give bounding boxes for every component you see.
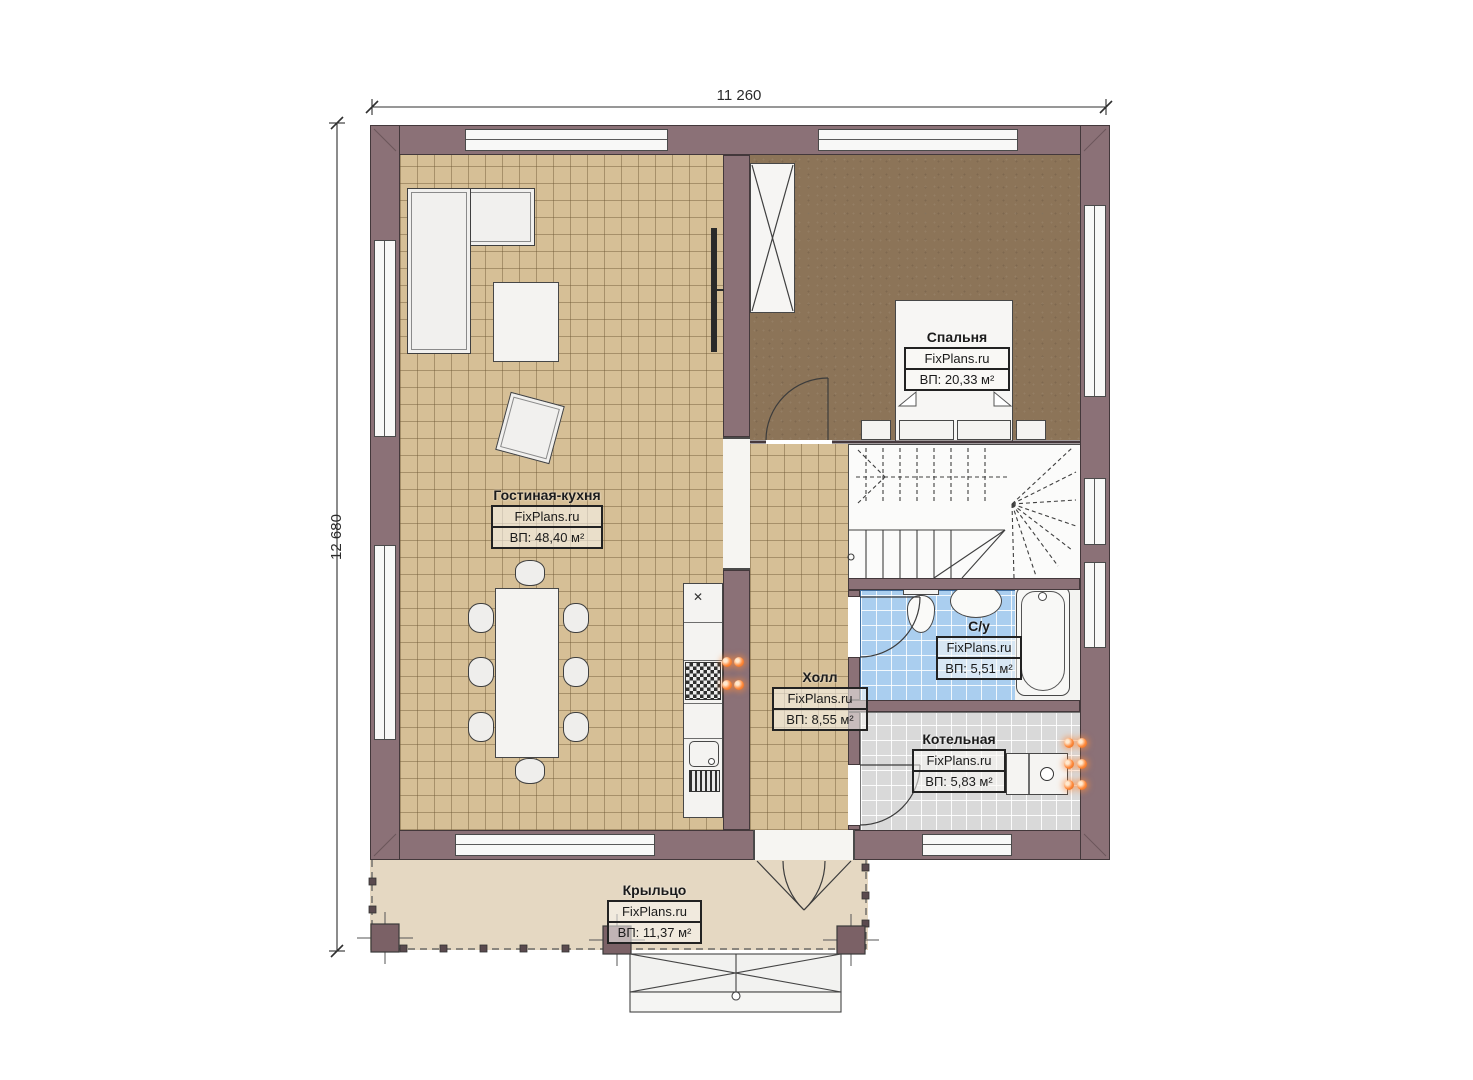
dish-drainer-grate (689, 770, 720, 792)
room-name: Спальня (904, 329, 1010, 345)
pipe-dot (1064, 759, 1074, 769)
room-label-box: FixPlans.ru ВП: 8,55 м² (772, 687, 868, 731)
stove-burners (685, 662, 721, 700)
room-label-living: Гостиная-кухня FixPlans.ru ВП: 48,40 м² (491, 487, 603, 549)
wardrobe (750, 163, 795, 313)
bed-mattress-left (899, 420, 954, 440)
room-name: Гостиная-кухня (491, 487, 603, 503)
window-bottom-living (455, 834, 655, 856)
window-top-living (465, 129, 668, 151)
radiator-dot (722, 657, 732, 667)
window-left-upper (374, 240, 396, 437)
wall-stairs-bathroom (848, 578, 1080, 590)
porch-steps (630, 954, 841, 1012)
dining-chair-left-3 (468, 712, 494, 742)
room-name: Крыльцо (607, 882, 702, 898)
counter-divider-3 (684, 703, 722, 704)
room-area: ВП: 20,33 м² (906, 368, 1008, 389)
floor-plan-canvas: ✕ (0, 0, 1473, 1080)
nightstand-right (1016, 420, 1046, 440)
dining-chair-left-1 (468, 603, 494, 633)
room-label-bedroom: Спальня FixPlans.ru ВП: 20,33 м² (904, 329, 1010, 391)
room-area: ВП: 48,40 м² (493, 526, 601, 547)
pipe-dot (1064, 738, 1074, 748)
window-right-bathroom (1084, 562, 1106, 648)
entrance-opening (753, 830, 855, 860)
window-top-bedroom (818, 129, 1018, 151)
stairwell-floor (848, 444, 1082, 580)
window-right-bedroom (1084, 205, 1106, 397)
wall-bathroom-boiler (848, 700, 1080, 712)
room-label-box: FixPlans.ru ВП: 48,40 м² (491, 505, 603, 549)
dining-table (495, 588, 559, 758)
counter-divider-1 (684, 622, 722, 623)
room-label-box: FixPlans.ru ВП: 20,33 м² (904, 347, 1010, 391)
tv-screen (711, 228, 717, 352)
room-name: Холл (772, 669, 868, 685)
bed-mattress-right (957, 420, 1011, 440)
counter-divider-2 (684, 660, 722, 661)
room-name: С/у (936, 618, 1022, 634)
hob-cross-icon: ✕ (693, 590, 703, 604)
dimension-height-label: 12 680 (328, 497, 346, 577)
boiler-unit-divider (1028, 754, 1030, 794)
dining-chair-top (515, 560, 545, 586)
dining-chair-left-2 (468, 657, 494, 687)
room-area: ВП: 5,83 м² (914, 770, 1004, 791)
nightstand-left (861, 420, 891, 440)
pipe-dot (1077, 759, 1087, 769)
sink-drain (708, 758, 715, 765)
window-right-stairs (1084, 478, 1106, 545)
brand-text: FixPlans.ru (493, 507, 601, 526)
room-label-boiler: Котельная FixPlans.ru ВП: 5,83 м² (912, 731, 1006, 793)
pipe-dot (1077, 780, 1087, 790)
opening-living-hall (723, 437, 750, 570)
dining-chair-right-2 (563, 657, 589, 687)
brand-text: FixPlans.ru (774, 689, 866, 708)
radiator-dot (734, 680, 744, 690)
radiator-dot (722, 680, 732, 690)
brand-text: FixPlans.ru (906, 349, 1008, 368)
dining-chair-bottom (515, 758, 545, 784)
wall-hall-bath-stub1 (848, 590, 860, 597)
room-label-box: FixPlans.ru ВП: 11,37 м² (607, 900, 702, 944)
hall-floor (750, 444, 848, 830)
room-label-bathroom: С/у FixPlans.ru ВП: 5,51 м² (936, 618, 1022, 680)
radiator-dot (734, 657, 744, 667)
room-label-box: FixPlans.ru ВП: 5,51 м² (936, 636, 1022, 680)
dimension-width-label: 11 260 (699, 87, 779, 104)
room-label-box: FixPlans.ru ВП: 5,83 м² (912, 749, 1006, 793)
wall-exterior-left (370, 125, 400, 860)
pipe-dot (1077, 738, 1087, 748)
room-area: ВП: 5,51 м² (938, 657, 1020, 678)
wall-partition-living-lower (723, 570, 750, 830)
bathtub-tap (1038, 592, 1047, 601)
counter-divider-4 (684, 738, 722, 739)
brand-text: FixPlans.ru (914, 751, 1004, 770)
pipe-dot (1064, 780, 1074, 790)
dining-chair-right-3 (563, 712, 589, 742)
sofa-chaise-vertical (407, 188, 471, 354)
dining-chair-right-1 (563, 603, 589, 633)
window-bottom-boiler (922, 834, 1012, 856)
wall-partition-living-upper (723, 155, 750, 437)
bathtub-inner (1021, 591, 1065, 691)
room-label-porch: Крыльцо FixPlans.ru ВП: 11,37 м² (607, 882, 702, 944)
room-name: Котельная (912, 731, 1006, 747)
room-area: ВП: 11,37 м² (609, 921, 700, 942)
brand-text: FixPlans.ru (938, 638, 1020, 657)
coffee-table (493, 282, 559, 362)
room-label-hall: Холл FixPlans.ru ВП: 8,55 м² (772, 669, 868, 731)
brand-text: FixPlans.ru (609, 902, 700, 921)
room-area: ВП: 8,55 м² (774, 708, 866, 729)
boiler-unit (1006, 753, 1068, 795)
window-left-lower (374, 545, 396, 740)
boiler-pump-circle (1040, 767, 1054, 781)
